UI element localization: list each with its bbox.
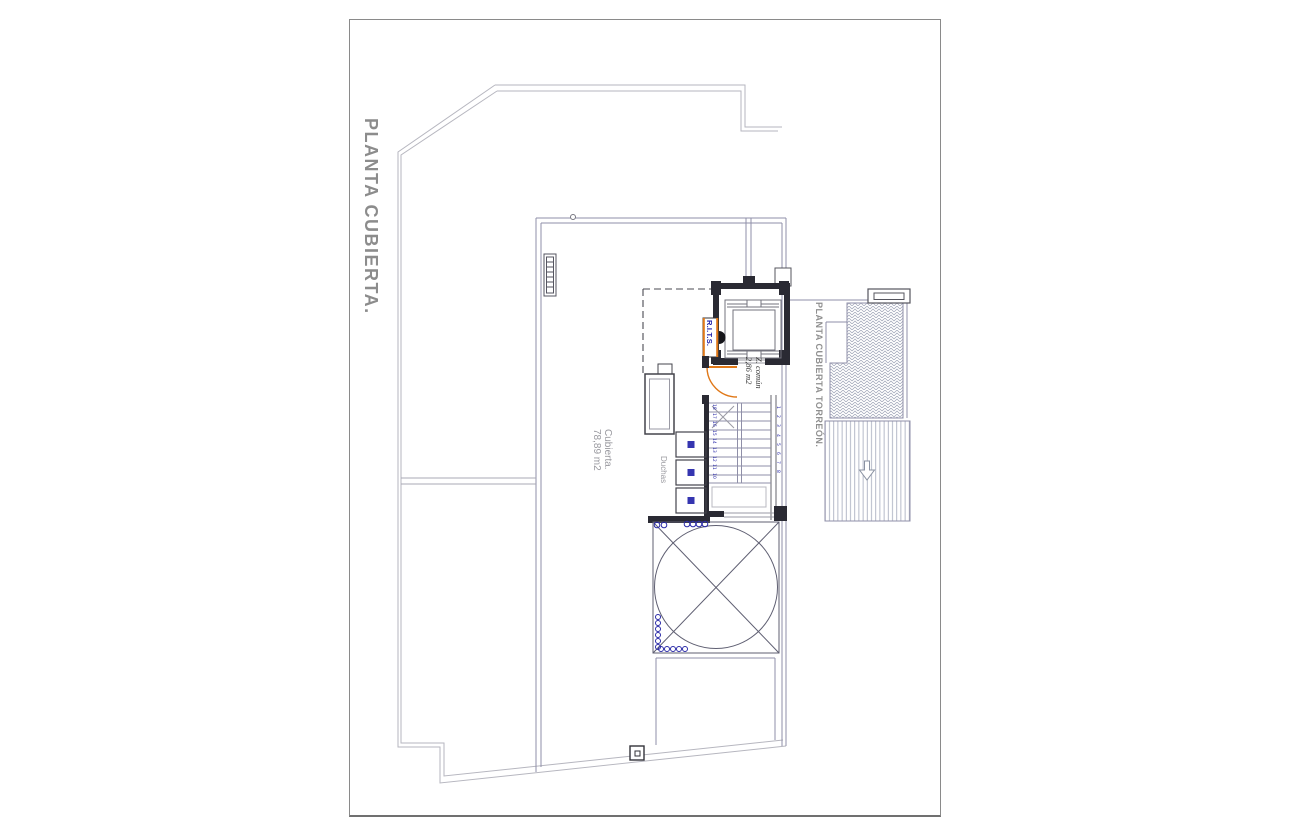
torreon-flat-roof: [790, 300, 907, 418]
stair-landing: [648, 487, 787, 523]
roof-ladder: [544, 254, 556, 296]
stair-step-number: 2: [775, 415, 780, 418]
shower-drain-icon: [688, 441, 695, 448]
stair-step-number: 15: [711, 430, 716, 436]
stair-step-numbers-right: 12345678: [780, 406, 786, 490]
roof-name: Cubierta.: [602, 429, 613, 471]
stair-step-number: 18: [711, 404, 716, 410]
torreon-title: PLANTA CUBIERTA TORREÓN.: [813, 302, 824, 447]
skylight: [653, 522, 779, 653]
stair-step-numbers-left: 181716151413121110: [716, 404, 722, 488]
showers: [676, 432, 706, 513]
shower-drain-icon: [688, 497, 695, 504]
stair-step-number: 4: [775, 434, 780, 437]
stair-step-number: 12: [711, 456, 716, 462]
roof-area-value: 78,89 m2: [591, 429, 602, 471]
roof-markers: [571, 215, 792, 287]
stair-step-number: 10: [711, 473, 716, 479]
stair-right-wall: [771, 395, 776, 520]
planter: [645, 364, 674, 434]
stair-step-number: 13: [711, 447, 716, 453]
drain-symbol: [630, 746, 644, 760]
stair-step-number: 14: [711, 438, 716, 444]
stair-step-number: 1: [775, 406, 780, 409]
roof-area-label: Cubierta. 78,89 m2: [591, 429, 613, 471]
common-zone-label: Z. común 2,86 m2: [744, 357, 764, 389]
elevator: [711, 281, 790, 365]
stair-step-number: 11: [711, 464, 716, 470]
stair-step-number: 16: [711, 421, 716, 427]
stair-step-number: 8: [775, 470, 780, 473]
common-zone-name: Z. común: [754, 357, 764, 389]
main-title: PLANTA CUBIERTA.: [360, 118, 382, 315]
common-zone-area-value: 2,86 m2: [744, 357, 754, 389]
spotlights: [654, 521, 708, 651]
stair-step-number: 6: [775, 452, 780, 455]
shower-drain-icon: [688, 469, 695, 476]
showers-label: Duchas: [659, 456, 668, 483]
landing-gate: [724, 513, 774, 517]
stair-step-number: 3: [775, 424, 780, 427]
landing-outline: [712, 487, 766, 507]
stair-step-number: 5: [775, 443, 780, 446]
drawing-canvas: PLANTA CUBIERTA. PLANTA CUBIERTA TORREÓN…: [0, 0, 1290, 840]
floor-plan: [0, 0, 1290, 840]
rits-label: R.I.T.S.: [702, 320, 716, 346]
vent-marker-icon: [571, 215, 576, 220]
elevator-car: [725, 300, 781, 358]
roof-section-divider: [401, 478, 536, 484]
torreon-sloped-roof: [825, 421, 910, 521]
stair-step-number: 17: [711, 413, 716, 419]
chimney: [868, 289, 910, 303]
stair-step-number: 7: [775, 461, 780, 464]
lower-terrace: [656, 658, 775, 745]
